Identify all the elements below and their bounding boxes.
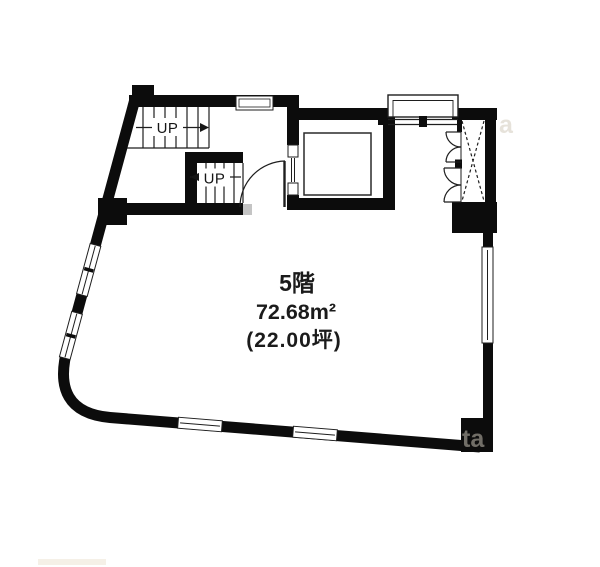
elevator-bottom-wall	[287, 198, 395, 210]
right-wall-upper	[483, 233, 493, 247]
top-left-wall-stub	[132, 85, 154, 97]
up-label-upper: UP	[157, 120, 179, 137]
elevator-right-wall	[383, 108, 395, 210]
right-wall-window	[482, 247, 493, 343]
elevator-top-wall	[287, 108, 390, 120]
watermark-corner: ta	[462, 425, 485, 453]
watermark-right: a	[499, 111, 514, 139]
shaft-bottom-block	[452, 202, 497, 233]
floor-plan-page: UP UP	[0, 0, 600, 567]
shaft-door-jamb	[457, 120, 462, 132]
watermark-bottom-smudge	[38, 559, 106, 565]
elevator-door-jamb-top	[288, 145, 298, 157]
elevator-car	[304, 133, 371, 195]
right-wall-lower	[483, 343, 493, 418]
balcony-outline	[388, 95, 458, 117]
stair-hall-south-wall	[98, 203, 243, 215]
floor-plan-drawing: UP UP	[0, 0, 600, 567]
area-tsubo-label: (22.00坪)	[246, 329, 342, 352]
area-sqm-label: 72.68m²	[256, 300, 336, 324]
lower-stair-top-wall	[185, 152, 243, 163]
elevator-door-jamb-bottom	[288, 183, 298, 195]
up-label-lower: UP	[204, 170, 226, 187]
top-wall-window	[236, 96, 273, 110]
sliding-door-stop	[419, 116, 427, 127]
door-threshold	[243, 204, 252, 215]
floor-label: 5階	[279, 270, 315, 296]
shaft-door-mid-post	[455, 160, 462, 169]
